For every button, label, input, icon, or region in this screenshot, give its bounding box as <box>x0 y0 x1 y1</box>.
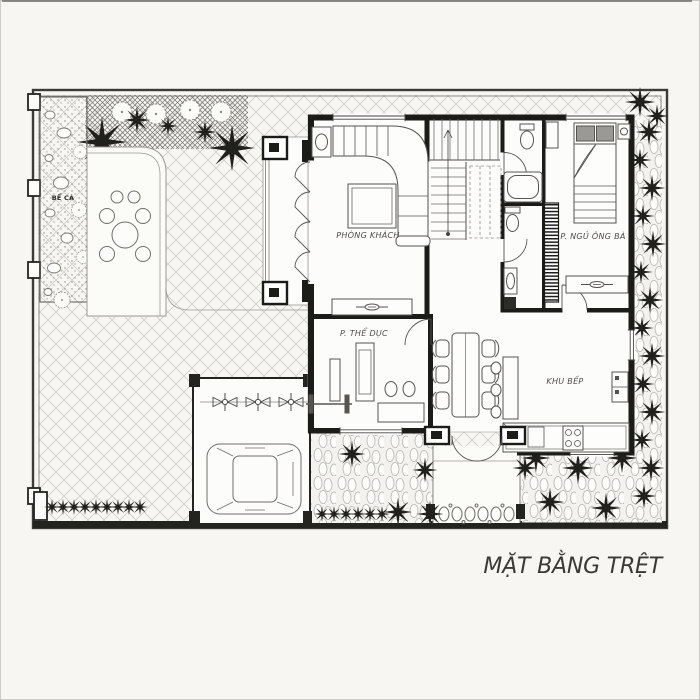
shrub-icon <box>124 107 151 134</box>
washer <box>504 297 516 309</box>
fish-pond: BỂ CÁ <box>40 97 90 308</box>
bar-stool <box>491 362 501 374</box>
shrub-icon <box>54 292 70 308</box>
chair <box>136 247 151 262</box>
toilet-tank <box>520 124 534 130</box>
house: PHÒNG KHÁCH P. NGỦ ÔNG BÀ P. THỂ DỤC KHU… <box>263 114 635 461</box>
coffee-table <box>348 184 396 228</box>
side-gate <box>34 492 47 520</box>
porch-terrace <box>263 137 308 305</box>
window-kitchen-right <box>628 330 635 360</box>
stove <box>563 426 583 450</box>
bedroom-cabinet <box>546 122 558 148</box>
chair <box>128 191 140 203</box>
gate-post <box>516 504 525 519</box>
kitchen-label: KHU BẾP <box>546 375 583 386</box>
bathtub <box>504 172 542 202</box>
chair <box>136 209 151 224</box>
equipment-table <box>378 403 424 422</box>
fish-pond-label: BỂ CÁ <box>52 192 74 202</box>
shrub-icon <box>72 203 87 218</box>
wardrobe <box>545 203 559 302</box>
window-bedroom-top <box>566 114 626 122</box>
toilet-bowl <box>507 215 519 232</box>
shrub-icon <box>193 120 216 143</box>
side-table <box>312 127 331 157</box>
barbell-plate <box>309 395 313 413</box>
chair <box>100 247 115 262</box>
garage <box>189 374 314 524</box>
sofa-armrest <box>396 236 430 246</box>
entrance-walkway <box>426 446 525 524</box>
round-table <box>112 222 138 248</box>
plan-title: MẶT BẰNG TRỆT <box>483 550 663 579</box>
window-living-top <box>333 114 405 122</box>
shrub-icon <box>158 116 178 136</box>
living-room-label: PHÒNG KHÁCH <box>336 229 400 240</box>
pillow <box>597 126 614 141</box>
chair <box>100 209 115 224</box>
car <box>207 444 301 514</box>
palm-plant-icon <box>209 125 256 172</box>
shrub-icon <box>74 146 87 159</box>
floor-plan-screenshot: BỂ CÁ <box>0 0 700 700</box>
stool <box>385 382 397 397</box>
barbell-plate <box>345 395 349 413</box>
toilet-bowl <box>521 131 534 149</box>
toilet-tank <box>505 207 520 213</box>
master-bedroom-label: P. NGỦ ÔNG BÀ <box>560 230 625 241</box>
window-gym-bottom <box>340 427 402 435</box>
tree-icon <box>211 102 231 122</box>
chair <box>111 191 123 203</box>
tree-icon <box>180 100 200 120</box>
bar-stool <box>491 406 501 418</box>
kitchen-island <box>503 357 518 419</box>
nightstand <box>618 124 630 139</box>
dining-set <box>432 333 499 417</box>
floor-plan-drawing: BỂ CÁ <box>0 0 700 700</box>
stool <box>403 382 415 397</box>
bench <box>330 359 340 401</box>
pillow <box>577 126 595 141</box>
sink-counter <box>504 268 517 294</box>
bar-stool <box>491 384 501 396</box>
